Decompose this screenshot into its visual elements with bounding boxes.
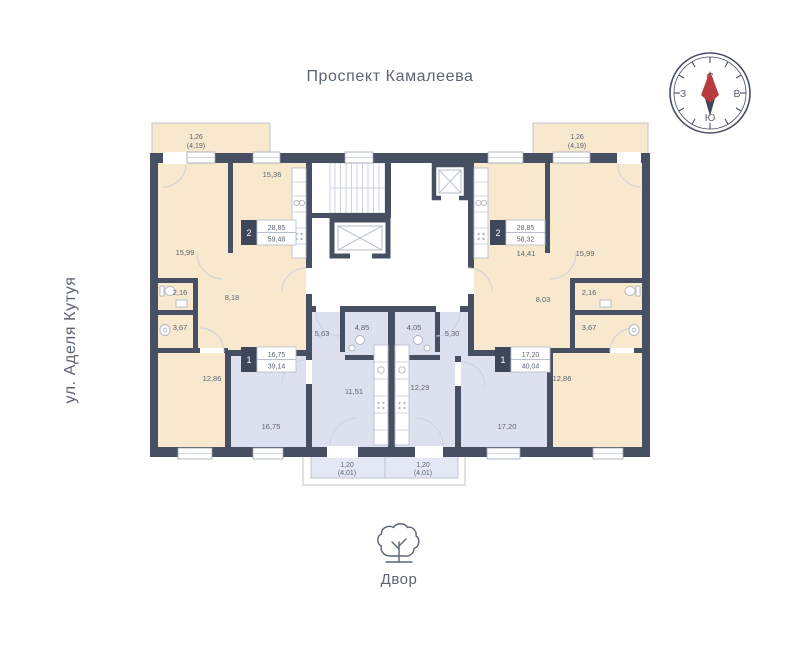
room-area-label: 5,63 bbox=[315, 329, 330, 338]
balcony-area-label: (4,01) bbox=[414, 470, 432, 477]
room-area-label: 15,99 bbox=[576, 249, 595, 258]
balcony-area-label: (4,19) bbox=[568, 143, 586, 150]
balcony-area-label: 1,20 bbox=[416, 462, 430, 469]
room-area-label: 3,67 bbox=[582, 323, 597, 332]
room-area-label: 4,05 bbox=[407, 323, 422, 332]
room-area-label: 8,03 bbox=[536, 295, 551, 304]
badge-living-area: 17,20 bbox=[522, 352, 540, 359]
badge-living-area: 28,85 bbox=[268, 225, 286, 232]
room-area-label: 15,36 bbox=[263, 170, 282, 179]
balcony-area-label: 1,26 bbox=[570, 134, 584, 141]
badge-rooms-count: 2 bbox=[495, 228, 500, 238]
room-area-label: 12,29 bbox=[411, 383, 430, 392]
room-area-label: 8,18 bbox=[225, 293, 240, 302]
room-area-label: 16,75 bbox=[262, 422, 281, 431]
room-area-label: 4,85 bbox=[355, 323, 370, 332]
room-area-label: 14,41 bbox=[517, 249, 536, 258]
balcony-area-label: 1,20 bbox=[340, 462, 354, 469]
badge-living-area: 16,75 bbox=[268, 352, 286, 359]
room-area-label: 2,16 bbox=[582, 288, 597, 297]
courtyard: Двор bbox=[378, 524, 419, 588]
balcony-area-label: 1,26 bbox=[189, 134, 203, 141]
balcony-top-right bbox=[533, 123, 648, 157]
badge-living-area: 28,85 bbox=[517, 225, 535, 232]
compass-east-label: В bbox=[733, 88, 740, 100]
compass-rose: С Ю З В bbox=[670, 53, 750, 133]
stairwell bbox=[330, 163, 385, 213]
room-area-label: 12,86 bbox=[203, 374, 222, 383]
apartment-badge-1room-right[interactable]: 1 17,20 40,04 bbox=[495, 347, 550, 372]
badge-total-area: 39,14 bbox=[268, 364, 286, 371]
badge-total-area: 58,32 bbox=[517, 237, 535, 244]
badge-total-area: 59,48 bbox=[268, 237, 286, 244]
room-area-label: 11,51 bbox=[345, 387, 363, 396]
courtyard-label: Двор bbox=[381, 571, 418, 588]
room-area-label: 5,30 bbox=[445, 329, 460, 338]
badge-total-area: 40,04 bbox=[522, 364, 540, 371]
room-area-label: 3,67 bbox=[173, 323, 188, 332]
street-label-left: ул. Аделя Кутуя bbox=[62, 276, 79, 403]
room-area-label: 15,99 bbox=[176, 248, 195, 257]
balcony-area-label: (4,01) bbox=[338, 470, 356, 477]
floorplan-page: Проспект Камалеева ул. Аделя Кутуя С Ю З… bbox=[0, 0, 800, 649]
badge-rooms-count: 1 bbox=[246, 355, 251, 365]
apartment-badge-1room-left[interactable]: 1 16,75 39,14 bbox=[241, 347, 296, 372]
badge-rooms-count: 1 bbox=[500, 355, 505, 365]
compass-west-label: З bbox=[680, 88, 686, 100]
apartment-badge-2room-left[interactable]: 2 28,85 59,48 bbox=[241, 220, 296, 245]
room-area-label: 12,86 bbox=[553, 374, 572, 383]
badge-rooms-count: 2 bbox=[246, 228, 251, 238]
balconies-bottom: 1,20 (4,01) 1,20 (4,01) bbox=[303, 455, 465, 485]
street-label-top: Проспект Камалеева bbox=[306, 68, 473, 85]
apartment-badge-2room-right[interactable]: 2 28,85 58,32 bbox=[490, 220, 545, 245]
tree-icon bbox=[378, 524, 419, 562]
room-area-label: 2,16 bbox=[173, 288, 188, 297]
room-area-label: 17,20 bbox=[498, 422, 517, 431]
balcony-area-label: (4,19) bbox=[187, 143, 205, 150]
floorplan-svg: Проспект Камалеева ул. Аделя Кутуя С Ю З… bbox=[0, 0, 800, 649]
